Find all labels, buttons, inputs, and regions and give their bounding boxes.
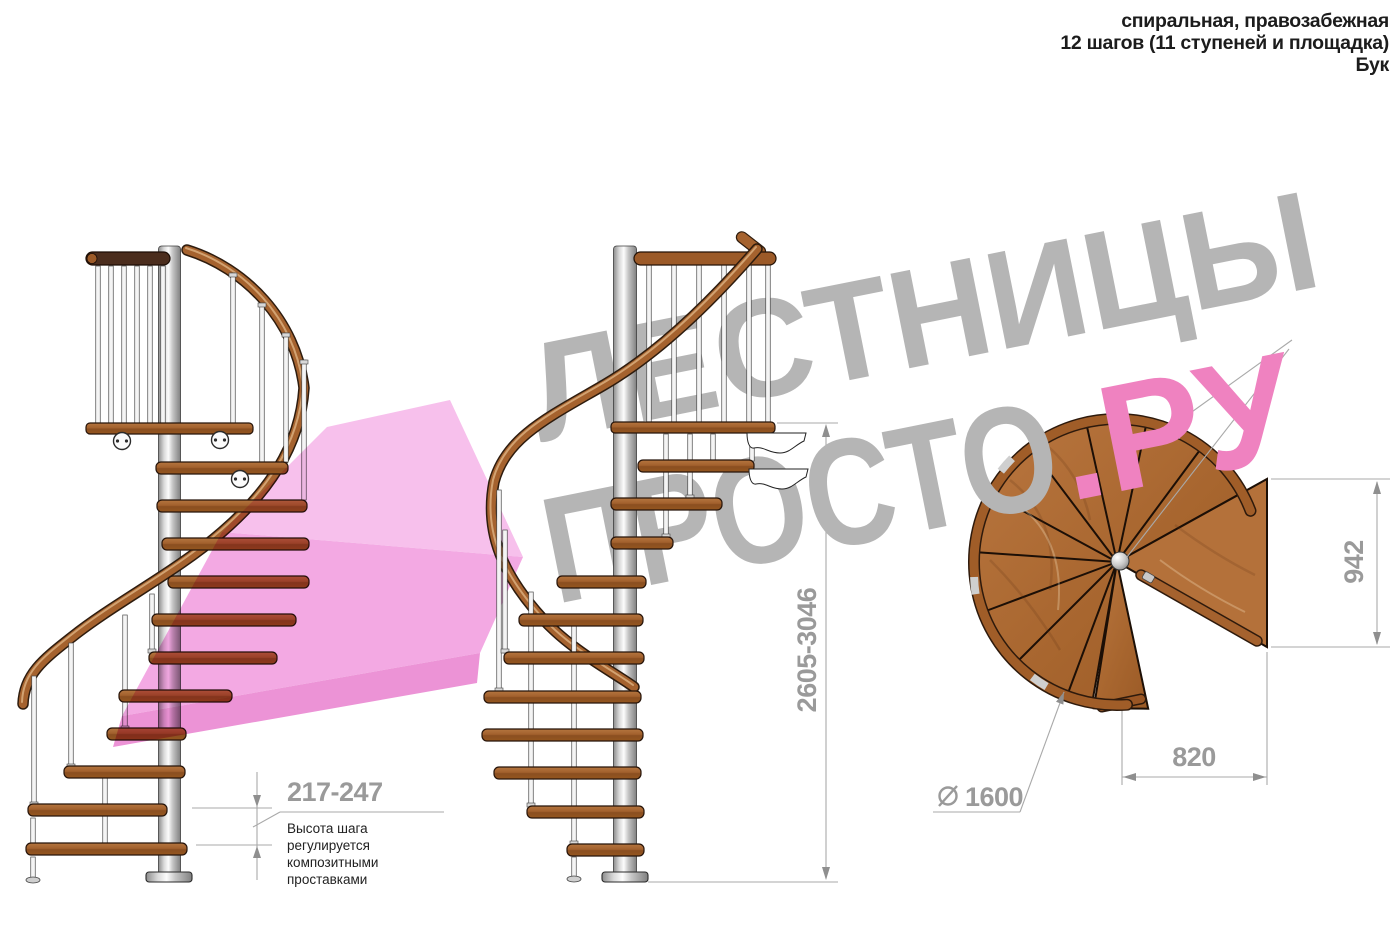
diameter-symbol xyxy=(939,786,957,806)
svg-text:проставками: проставками xyxy=(287,872,367,887)
center-pole-cap xyxy=(1111,552,1129,570)
dim-platform-width: 820 xyxy=(1172,742,1216,772)
dim-step-height: 217-247 xyxy=(287,777,383,807)
step xyxy=(519,614,643,626)
title-line-material: Бук xyxy=(1356,54,1390,76)
landing-platform xyxy=(611,422,775,433)
dim-diameter: 1600 xyxy=(965,782,1023,812)
step xyxy=(26,843,187,855)
pole-base-flange xyxy=(146,872,192,882)
svg-text:композитными: композитными xyxy=(287,855,378,870)
spiral-staircase-drawing: 217-247 2605-3046 942 820 1600 Высота ша… xyxy=(0,0,1400,951)
step xyxy=(611,498,722,510)
mounting-plates xyxy=(114,432,249,488)
step xyxy=(638,460,754,472)
step xyxy=(28,804,167,816)
svg-text:регулируется: регулируется xyxy=(287,838,370,853)
step xyxy=(484,691,641,703)
dim-platform-depth: 942 xyxy=(1339,540,1369,584)
dim-total-height: 2605-3046 xyxy=(792,587,822,712)
step xyxy=(156,462,288,474)
landing-platform xyxy=(86,423,253,434)
title-block: спиральная, правозабежная 12 шагов (11 с… xyxy=(1060,10,1389,76)
step xyxy=(494,767,641,779)
title-line-type: спиральная, правозабежная xyxy=(1121,10,1389,32)
step xyxy=(611,537,673,549)
drawing-canvas: 217-247 2605-3046 942 820 1600 Высота ша… xyxy=(0,0,1400,951)
title-line-steps: 12 шагов (11 ступеней и площадка) xyxy=(1060,32,1389,54)
step xyxy=(527,806,644,818)
railing-top-rail xyxy=(86,252,170,265)
step-height-note: Высота шага регулируется композитными пр… xyxy=(287,821,378,887)
step xyxy=(557,576,646,588)
step xyxy=(482,729,643,741)
step xyxy=(567,844,644,856)
step xyxy=(504,652,644,664)
svg-text:Высота шага: Высота шага xyxy=(287,821,368,836)
center-pole xyxy=(614,246,637,874)
platform-railing xyxy=(86,252,170,423)
pole-base-flange xyxy=(602,872,648,882)
step xyxy=(64,766,185,778)
